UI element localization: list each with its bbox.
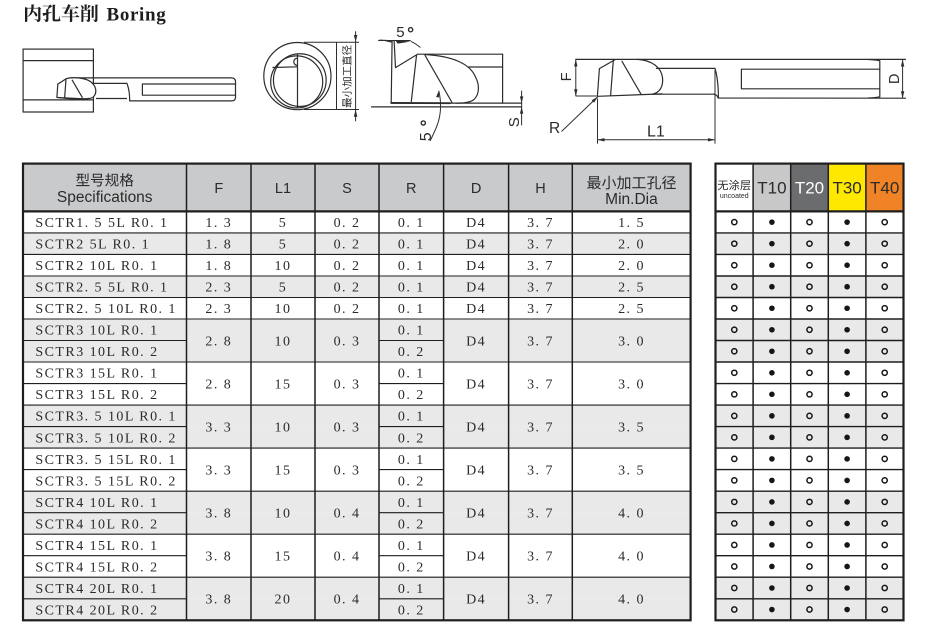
svg-text:H: H — [535, 181, 545, 197]
svg-text:0. 2: 0. 2 — [398, 345, 425, 360]
svg-text:D4: D4 — [466, 377, 486, 392]
svg-text:3. 8: 3. 8 — [205, 593, 232, 608]
svg-text:0. 2: 0. 2 — [334, 238, 361, 253]
svg-text:2. 5: 2. 5 — [618, 281, 645, 296]
svg-text:4. 0: 4. 0 — [618, 550, 645, 565]
svg-text:3. 7: 3. 7 — [527, 238, 554, 253]
svg-text:SCTR2. 5 10L R0. 1: SCTR2. 5 10L R0. 1 — [35, 302, 176, 317]
svg-text:D4: D4 — [466, 238, 486, 253]
svg-text:5: 5 — [396, 24, 404, 41]
svg-text:10: 10 — [275, 302, 292, 317]
svg-text:0. 2: 0. 2 — [398, 603, 425, 618]
svg-text:1. 3: 1. 3 — [205, 216, 232, 231]
svg-text:D4: D4 — [466, 507, 486, 522]
svg-text:0. 2: 0. 2 — [398, 388, 425, 403]
svg-text:Specifications: Specifications — [57, 189, 153, 206]
svg-text:3. 7: 3. 7 — [527, 281, 554, 296]
svg-text:SCTR3 10L R0. 1: SCTR3 10L R0. 1 — [35, 324, 158, 339]
svg-text:4. 0: 4. 0 — [618, 507, 645, 522]
svg-text:2. 5: 2. 5 — [618, 302, 645, 317]
svg-text:D4: D4 — [466, 216, 486, 231]
svg-text:SCTR3 10L R0. 2: SCTR3 10L R0. 2 — [35, 345, 158, 360]
svg-text:10: 10 — [275, 421, 292, 436]
svg-text:R: R — [406, 181, 416, 197]
svg-text:3. 0: 3. 0 — [618, 334, 645, 349]
svg-text:3. 5: 3. 5 — [618, 464, 645, 479]
svg-text:0. 2: 0. 2 — [398, 560, 425, 575]
svg-text:3. 5: 3. 5 — [618, 421, 645, 436]
svg-text:0. 1: 0. 1 — [398, 410, 425, 425]
svg-text:D4: D4 — [466, 464, 486, 479]
svg-text:0. 3: 0. 3 — [334, 377, 361, 392]
svg-text:4. 0: 4. 0 — [618, 593, 645, 608]
svg-text:2. 0: 2. 0 — [618, 238, 645, 253]
svg-text:0. 1: 0. 1 — [398, 324, 425, 339]
svg-text:SCTR4 10L R0. 2: SCTR4 10L R0. 2 — [35, 517, 158, 532]
svg-text:3. 7: 3. 7 — [527, 216, 554, 231]
svg-text:D4: D4 — [466, 281, 486, 296]
svg-text:SCTR4 20L R0. 2: SCTR4 20L R0. 2 — [35, 603, 158, 618]
svg-text:3. 7: 3. 7 — [527, 334, 554, 349]
svg-text:SCTR4 15L R0. 1: SCTR4 15L R0. 1 — [35, 539, 158, 554]
svg-text:15: 15 — [275, 377, 292, 392]
svg-text:SCTR3. 5 15L R0. 2: SCTR3. 5 15L R0. 2 — [35, 474, 176, 489]
svg-text:0. 1: 0. 1 — [398, 496, 425, 511]
svg-text:3. 7: 3. 7 — [527, 377, 554, 392]
svg-text:0. 1: 0. 1 — [398, 259, 425, 274]
svg-text:0. 1: 0. 1 — [398, 539, 425, 554]
svg-text:3. 7: 3. 7 — [527, 421, 554, 436]
svg-text:D4: D4 — [466, 550, 486, 565]
svg-text:D4: D4 — [466, 334, 486, 349]
svg-text:SCTR3 15L R0. 1: SCTR3 15L R0. 1 — [35, 367, 158, 382]
svg-text:2. 8: 2. 8 — [205, 334, 232, 349]
svg-text:Boring: Boring — [107, 5, 167, 26]
svg-text:L1: L1 — [275, 181, 291, 197]
svg-text:T30: T30 — [832, 179, 861, 198]
svg-text:0. 2: 0. 2 — [334, 259, 361, 274]
svg-text:0. 1: 0. 1 — [398, 281, 425, 296]
svg-text:3. 3: 3. 3 — [205, 464, 232, 479]
svg-text:L1: L1 — [647, 124, 665, 141]
svg-text:SCTR4 10L R0. 1: SCTR4 10L R0. 1 — [35, 496, 158, 511]
svg-text:D4: D4 — [466, 421, 486, 436]
svg-text:0. 3: 0. 3 — [334, 464, 361, 479]
svg-text:D4: D4 — [466, 302, 486, 317]
svg-text:3. 7: 3. 7 — [527, 302, 554, 317]
svg-text:0. 4: 0. 4 — [334, 550, 361, 565]
svg-text:SCTR2 5L R0. 1: SCTR2 5L R0. 1 — [35, 238, 150, 253]
svg-text:S: S — [342, 181, 352, 197]
svg-text:0. 1: 0. 1 — [398, 216, 425, 231]
svg-text:2. 3: 2. 3 — [205, 281, 232, 296]
svg-text:0. 2: 0. 2 — [334, 302, 361, 317]
svg-text:5: 5 — [418, 132, 435, 141]
svg-text:SCTR3. 5 10L R0. 2: SCTR3. 5 10L R0. 2 — [35, 431, 176, 446]
svg-text:5: 5 — [279, 216, 287, 231]
svg-text:0. 3: 0. 3 — [334, 334, 361, 349]
svg-text:SCTR2. 5 5L R0. 1: SCTR2. 5 5L R0. 1 — [35, 281, 168, 296]
svg-text:5: 5 — [279, 281, 287, 296]
svg-text:3. 7: 3. 7 — [527, 259, 554, 274]
svg-text:0. 2: 0. 2 — [334, 281, 361, 296]
svg-text:0. 3: 0. 3 — [334, 421, 361, 436]
svg-text:0. 1: 0. 1 — [398, 453, 425, 468]
svg-text:10: 10 — [275, 507, 292, 522]
svg-text:SCTR3. 5 10L R0. 1: SCTR3. 5 10L R0. 1 — [35, 410, 176, 425]
svg-text:3. 0: 3. 0 — [618, 377, 645, 392]
svg-text:2. 8: 2. 8 — [205, 377, 232, 392]
svg-text:1. 5: 1. 5 — [618, 216, 645, 231]
svg-text:1. 8: 1. 8 — [205, 259, 232, 274]
svg-text:3. 8: 3. 8 — [205, 507, 232, 522]
svg-text:3. 7: 3. 7 — [527, 550, 554, 565]
svg-text:0. 2: 0. 2 — [334, 216, 361, 231]
svg-text:3. 7: 3. 7 — [527, 593, 554, 608]
svg-text:20: 20 — [275, 593, 292, 608]
svg-text:10: 10 — [275, 259, 292, 274]
svg-text:5: 5 — [279, 238, 287, 253]
svg-text:F: F — [214, 181, 223, 197]
svg-text:S: S — [506, 117, 523, 127]
svg-text:SCTR1. 5 5L R0. 1: SCTR1. 5 5L R0. 1 — [35, 216, 168, 231]
svg-text:0. 4: 0. 4 — [334, 507, 361, 522]
svg-text:0. 1: 0. 1 — [398, 302, 425, 317]
svg-text:15: 15 — [275, 464, 292, 479]
svg-text:T20: T20 — [795, 179, 824, 198]
svg-text:0. 1: 0. 1 — [398, 367, 425, 382]
svg-text:SCTR3 15L R0. 2: SCTR3 15L R0. 2 — [35, 388, 158, 403]
svg-text:0. 2: 0. 2 — [398, 431, 425, 446]
svg-text:0. 1: 0. 1 — [398, 238, 425, 253]
svg-text:0. 2: 0. 2 — [398, 474, 425, 489]
svg-text:0. 4: 0. 4 — [334, 593, 361, 608]
svg-text:3. 7: 3. 7 — [527, 507, 554, 522]
svg-text:D4: D4 — [466, 593, 486, 608]
svg-text:3. 3: 3. 3 — [205, 421, 232, 436]
svg-text:uncoated: uncoated — [720, 193, 749, 200]
svg-text:1. 8: 1. 8 — [205, 238, 232, 253]
svg-text:T40: T40 — [870, 179, 899, 198]
svg-text:Min.Dia: Min.Dia — [605, 191, 658, 208]
svg-text:R: R — [549, 120, 560, 137]
svg-text:3. 8: 3. 8 — [205, 550, 232, 565]
svg-text:D: D — [887, 74, 903, 84]
svg-text:T10: T10 — [757, 179, 786, 198]
svg-text:D: D — [471, 181, 481, 197]
svg-text:3. 7: 3. 7 — [527, 464, 554, 479]
svg-text:SCTR3. 5 15L R0. 1: SCTR3. 5 15L R0. 1 — [35, 453, 176, 468]
svg-text:2. 0: 2. 0 — [618, 259, 645, 274]
svg-text:0. 1: 0. 1 — [398, 582, 425, 597]
svg-text:SCTR2 10L R0. 1: SCTR2 10L R0. 1 — [35, 259, 158, 274]
svg-text:F: F — [559, 72, 575, 81]
svg-text:15: 15 — [275, 550, 292, 565]
svg-text:10: 10 — [275, 334, 292, 349]
svg-text:SCTR4 20L R0. 1: SCTR4 20L R0. 1 — [35, 582, 158, 597]
svg-text:0. 2: 0. 2 — [398, 517, 425, 532]
svg-text:D4: D4 — [466, 259, 486, 274]
svg-text:SCTR4 15L R0. 2: SCTR4 15L R0. 2 — [35, 560, 158, 575]
svg-text:2. 3: 2. 3 — [205, 302, 232, 317]
